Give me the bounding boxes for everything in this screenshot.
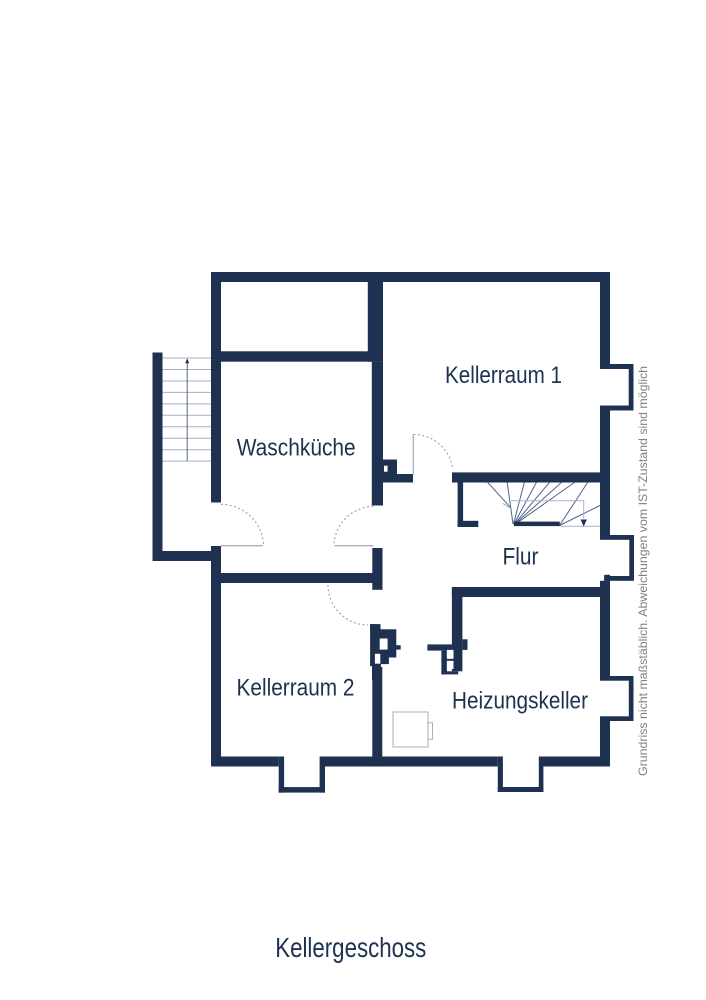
svg-text:Heizungskeller: Heizungskeller [452, 687, 588, 714]
svg-text:Flur: Flur [503, 544, 539, 571]
svg-text:Kellerraum 1: Kellerraum 1 [445, 362, 562, 389]
svg-text:Kellerraum 2: Kellerraum 2 [237, 675, 355, 702]
svg-text:Grundriss nicht maßstäblich. A: Grundriss nicht maßstäblich. Abweichunge… [636, 366, 650, 776]
svg-text:Kellergeschoss: Kellergeschoss [275, 932, 426, 963]
svg-text:Waschküche: Waschküche [237, 435, 356, 462]
